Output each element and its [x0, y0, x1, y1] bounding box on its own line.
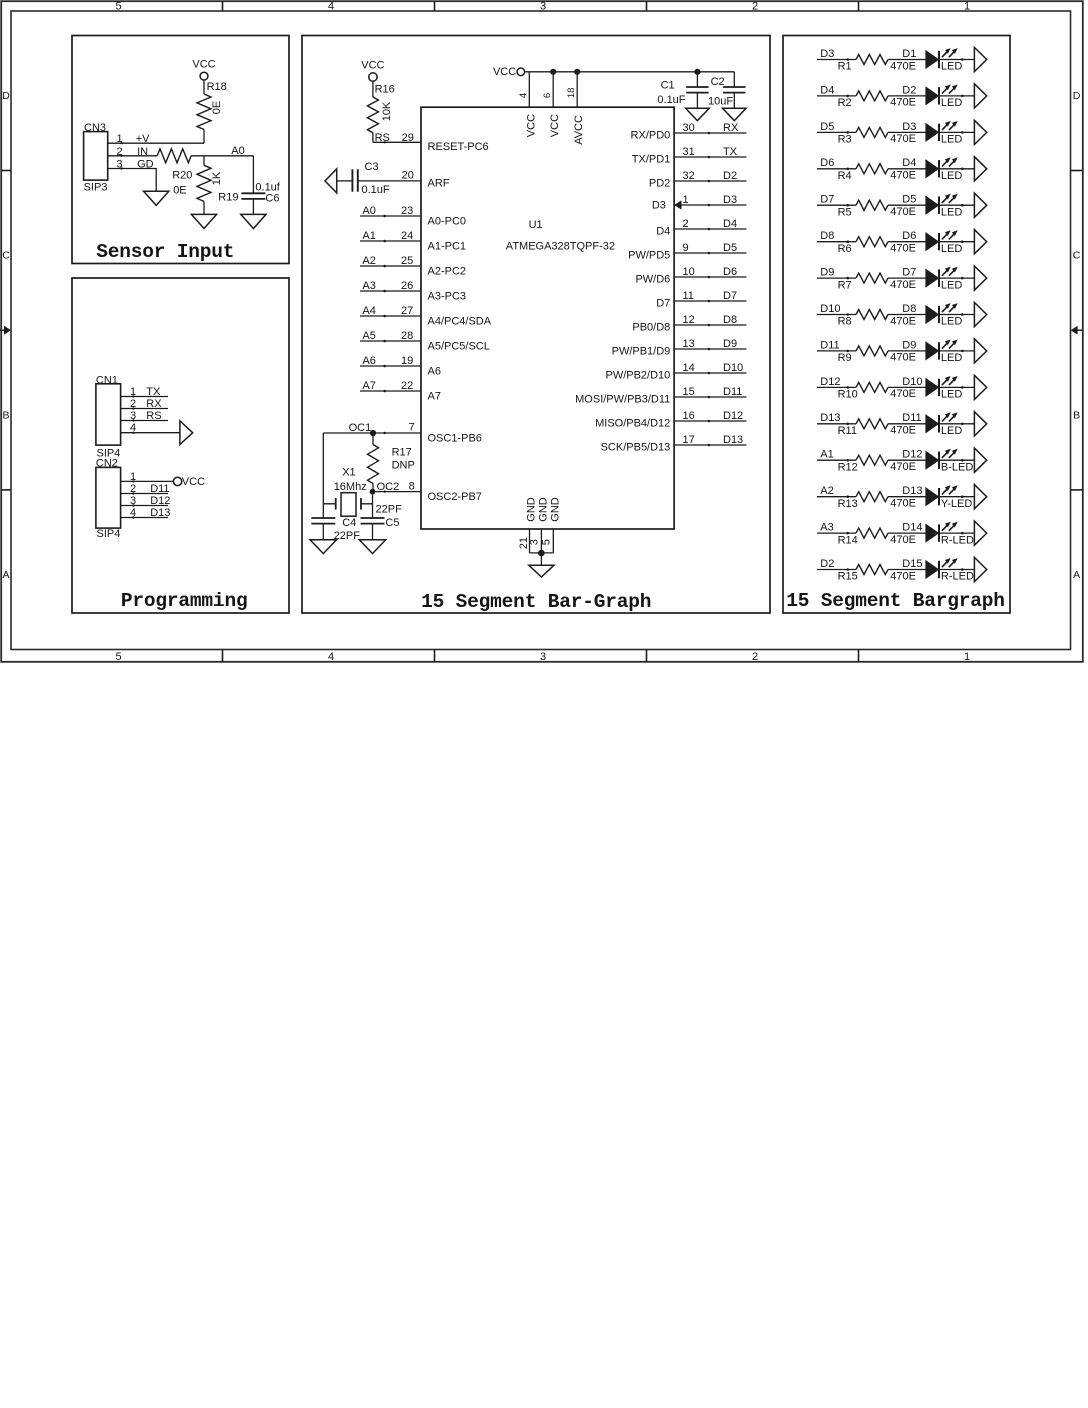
svg-text:22PF: 22PF — [334, 530, 361, 542]
svg-text:D2: D2 — [902, 84, 916, 96]
svg-text:18: 18 — [566, 88, 577, 99]
svg-text:13: 13 — [683, 338, 695, 350]
svg-text:D12: D12 — [723, 410, 743, 422]
svg-text:25: 25 — [401, 255, 413, 267]
svg-text:A: A — [2, 569, 9, 581]
svg-text:R1: R1 — [838, 61, 852, 73]
svg-text:D5: D5 — [820, 121, 834, 133]
svg-text:OC2: OC2 — [377, 481, 400, 493]
svg-text:A5/PC5/SCL: A5/PC5/SCL — [428, 341, 490, 353]
svg-text:10: 10 — [683, 266, 695, 278]
svg-text:AVCC: AVCC — [573, 115, 585, 145]
svg-text:3: 3 — [540, 651, 546, 663]
svg-text:470E: 470E — [890, 388, 916, 400]
svg-text:0E: 0E — [211, 101, 223, 114]
svg-text:A7: A7 — [362, 380, 375, 392]
svg-text:1: 1 — [683, 194, 689, 206]
svg-text:470E: 470E — [890, 534, 916, 546]
svg-text:31: 31 — [683, 146, 695, 158]
svg-text:R7: R7 — [838, 279, 852, 291]
svg-text:15: 15 — [683, 386, 695, 398]
svg-text:C: C — [1073, 250, 1081, 262]
svg-text:D6: D6 — [723, 266, 737, 278]
svg-text:D8: D8 — [723, 314, 737, 326]
svg-text:470E: 470E — [890, 97, 916, 109]
svg-text:R14: R14 — [838, 534, 858, 546]
svg-text:D11: D11 — [820, 339, 839, 351]
svg-text:17: 17 — [683, 434, 695, 446]
svg-text:MISO/PB4/D12: MISO/PB4/D12 — [595, 418, 670, 430]
svg-text:X1: X1 — [342, 467, 355, 479]
svg-text:D10: D10 — [902, 376, 922, 388]
svg-text:LED: LED — [941, 61, 962, 73]
svg-text:D9: D9 — [902, 339, 916, 351]
svg-text:5: 5 — [115, 651, 121, 663]
svg-text:D11: D11 — [723, 386, 742, 398]
svg-text:Programming: Programming — [121, 590, 248, 612]
svg-text:3: 3 — [117, 158, 123, 170]
svg-text:PW/PB1/D9: PW/PB1/D9 — [612, 346, 671, 358]
svg-text:D7: D7 — [723, 290, 737, 302]
svg-text:D11: D11 — [150, 483, 169, 495]
svg-text:R8: R8 — [838, 316, 852, 328]
svg-text:C6: C6 — [265, 192, 279, 204]
svg-text:LED: LED — [941, 279, 962, 291]
svg-text:A: A — [1073, 569, 1080, 581]
svg-text:D8: D8 — [820, 230, 834, 242]
svg-text:R16: R16 — [375, 84, 395, 96]
svg-text:3: 3 — [130, 410, 136, 422]
svg-text:LED: LED — [941, 134, 962, 146]
svg-text:GD: GD — [137, 158, 154, 170]
svg-text:470E: 470E — [890, 243, 916, 255]
svg-text:D10: D10 — [723, 362, 743, 374]
svg-text:470E: 470E — [890, 170, 916, 182]
svg-text:A3: A3 — [820, 522, 833, 534]
svg-text:4: 4 — [328, 651, 334, 663]
svg-text:RESET-PC6: RESET-PC6 — [428, 141, 489, 153]
svg-text:R6: R6 — [838, 243, 852, 255]
svg-text:VCC: VCC — [192, 59, 215, 71]
svg-text:D15: D15 — [902, 558, 922, 570]
svg-text:2: 2 — [117, 146, 123, 158]
svg-text:1: 1 — [130, 386, 136, 398]
svg-text:D4: D4 — [723, 218, 737, 230]
svg-text:B: B — [2, 409, 9, 421]
svg-text:470E: 470E — [890, 570, 916, 582]
svg-text:LED: LED — [941, 389, 962, 401]
svg-text:LED: LED — [941, 170, 962, 182]
svg-text:C4: C4 — [342, 517, 356, 529]
svg-text:R19: R19 — [218, 191, 238, 203]
svg-text:D8: D8 — [902, 303, 916, 315]
svg-text:R2: R2 — [838, 97, 852, 109]
svg-text:C: C — [2, 250, 10, 262]
svg-text:A2: A2 — [820, 485, 833, 497]
svg-text:D11: D11 — [902, 412, 921, 424]
svg-text:16: 16 — [683, 410, 695, 422]
svg-text:D13: D13 — [820, 412, 840, 424]
svg-text:R4: R4 — [838, 170, 852, 182]
svg-text:C5: C5 — [385, 517, 399, 529]
svg-text:470E: 470E — [890, 206, 916, 218]
svg-text:10uF: 10uF — [708, 95, 733, 107]
svg-text:+V: +V — [136, 133, 150, 145]
svg-text:470E: 470E — [890, 60, 916, 72]
svg-text:24: 24 — [401, 230, 413, 242]
svg-text:D1: D1 — [902, 48, 916, 60]
svg-text:LED: LED — [941, 243, 962, 255]
svg-text:RX: RX — [723, 122, 739, 134]
svg-text:D2: D2 — [723, 170, 737, 182]
svg-text:2: 2 — [752, 1, 758, 13]
svg-text:D13: D13 — [723, 434, 743, 446]
svg-text:32: 32 — [683, 170, 695, 182]
svg-text:2: 2 — [752, 651, 758, 663]
svg-text:D12: D12 — [902, 449, 922, 461]
svg-text:5: 5 — [541, 539, 553, 545]
svg-text:LED: LED — [941, 97, 962, 109]
svg-text:1: 1 — [117, 133, 123, 145]
svg-text:470E: 470E — [890, 279, 916, 291]
svg-text:D5: D5 — [723, 242, 737, 254]
svg-text:R17: R17 — [392, 447, 412, 459]
svg-text:PW/PB2/D10: PW/PB2/D10 — [605, 370, 670, 382]
svg-text:PW/PD5: PW/PD5 — [628, 250, 670, 262]
svg-text:D4: D4 — [820, 84, 834, 96]
svg-text:D4: D4 — [656, 226, 670, 238]
svg-text:3: 3 — [528, 539, 540, 545]
svg-text:PB0/D8: PB0/D8 — [632, 322, 670, 334]
svg-text:D12: D12 — [150, 495, 170, 507]
svg-text:A1: A1 — [362, 230, 375, 242]
svg-text:0.1uF: 0.1uF — [657, 94, 685, 106]
svg-text:3: 3 — [540, 1, 546, 13]
svg-text:D10: D10 — [820, 303, 840, 315]
svg-text:D3: D3 — [652, 200, 666, 212]
svg-text:SCK/PB5/D13: SCK/PB5/D13 — [601, 442, 671, 454]
svg-text:OSC2-PB7: OSC2-PB7 — [428, 491, 482, 503]
svg-text:ARF: ARF — [428, 177, 450, 189]
svg-text:GND: GND — [550, 497, 562, 522]
svg-text:U1: U1 — [529, 219, 543, 231]
svg-text:12: 12 — [683, 314, 695, 326]
svg-text:470E: 470E — [890, 315, 916, 327]
svg-text:14: 14 — [683, 362, 695, 374]
svg-text:GND: GND — [526, 497, 538, 522]
svg-text:1: 1 — [964, 1, 970, 13]
svg-text:TX: TX — [146, 386, 161, 398]
svg-text:OC1: OC1 — [349, 422, 372, 434]
svg-text:R-LED: R-LED — [941, 571, 974, 583]
svg-text:0E: 0E — [173, 184, 186, 196]
svg-text:22PF: 22PF — [376, 504, 403, 516]
svg-text:D7: D7 — [656, 298, 670, 310]
svg-text:5: 5 — [115, 1, 121, 13]
svg-text:A1-PC1: A1-PC1 — [428, 241, 467, 253]
svg-text:D13: D13 — [150, 507, 170, 519]
svg-text:R5: R5 — [838, 206, 852, 218]
svg-text:28: 28 — [401, 330, 413, 342]
svg-text:LED: LED — [941, 206, 962, 218]
svg-text:1: 1 — [964, 651, 970, 663]
svg-text:D3: D3 — [820, 48, 834, 60]
svg-text:A4/PC4/SDA: A4/PC4/SDA — [428, 316, 492, 328]
svg-text:D: D — [1073, 90, 1081, 102]
svg-text:R12: R12 — [838, 461, 858, 473]
svg-text:A2-PC2: A2-PC2 — [428, 266, 467, 278]
svg-text:R9: R9 — [838, 352, 852, 364]
svg-text:15 Segment Bargraph: 15 Segment Bargraph — [786, 590, 1005, 612]
svg-text:30: 30 — [683, 122, 695, 134]
svg-text:D3: D3 — [723, 194, 737, 206]
svg-text:A1: A1 — [820, 449, 833, 461]
svg-text:6: 6 — [542, 93, 553, 98]
svg-text:27: 27 — [401, 305, 413, 317]
svg-text:RX/PD0: RX/PD0 — [631, 130, 671, 142]
svg-text:VCC: VCC — [182, 476, 205, 488]
svg-text:4: 4 — [328, 1, 334, 13]
svg-text:20: 20 — [402, 169, 414, 181]
svg-text:D: D — [2, 90, 10, 102]
svg-text:R11: R11 — [838, 425, 857, 437]
svg-text:11: 11 — [683, 290, 694, 302]
svg-text:SIP3: SIP3 — [84, 181, 108, 193]
svg-text:B-LED: B-LED — [941, 461, 973, 473]
svg-text:A2: A2 — [362, 255, 375, 267]
svg-text:7: 7 — [409, 422, 415, 434]
svg-text:4: 4 — [130, 422, 136, 434]
svg-text:D5: D5 — [902, 194, 916, 206]
svg-text:D9: D9 — [820, 267, 834, 279]
svg-text:C3: C3 — [365, 161, 379, 173]
svg-text:LED: LED — [941, 316, 962, 328]
svg-text:R18: R18 — [207, 81, 227, 93]
svg-text:R-LED: R-LED — [941, 534, 974, 546]
svg-text:RS: RS — [146, 410, 161, 422]
svg-text:1K: 1K — [211, 171, 223, 185]
svg-text:15 Segment Bar-Graph: 15 Segment Bar-Graph — [421, 591, 651, 613]
svg-text:VCC: VCC — [493, 66, 516, 78]
svg-text:D9: D9 — [723, 338, 737, 350]
svg-text:10K: 10K — [381, 101, 393, 121]
svg-text:A3: A3 — [362, 280, 375, 292]
svg-text:0.1uF: 0.1uF — [362, 184, 390, 196]
svg-text:A6: A6 — [428, 366, 441, 378]
svg-text:CN1: CN1 — [96, 374, 118, 386]
svg-text:B: B — [1073, 409, 1080, 421]
svg-text:2: 2 — [683, 218, 689, 230]
svg-text:D14: D14 — [902, 522, 922, 534]
svg-text:TX: TX — [723, 146, 738, 158]
svg-text:22: 22 — [401, 380, 413, 392]
svg-text:A0: A0 — [362, 205, 375, 217]
svg-text:3: 3 — [130, 495, 136, 507]
svg-text:R3: R3 — [838, 134, 852, 146]
svg-text:GND: GND — [538, 497, 550, 522]
svg-text:470E: 470E — [890, 133, 916, 145]
svg-text:A0-PC0: A0-PC0 — [428, 216, 467, 228]
svg-text:D12: D12 — [820, 376, 840, 388]
svg-text:2: 2 — [130, 398, 136, 410]
svg-text:R13: R13 — [838, 498, 858, 510]
svg-text:R15: R15 — [838, 571, 858, 583]
svg-text:8: 8 — [409, 480, 415, 492]
svg-text:A6: A6 — [362, 355, 375, 367]
svg-text:29: 29 — [402, 132, 414, 144]
svg-text:2: 2 — [130, 483, 136, 495]
svg-text:470E: 470E — [890, 352, 916, 364]
svg-text:A3-PC3: A3-PC3 — [428, 291, 467, 303]
svg-text:470E: 470E — [890, 461, 916, 473]
svg-text:Sensor Input: Sensor Input — [96, 241, 234, 263]
svg-text:470E: 470E — [890, 425, 916, 437]
svg-text:ATMEGA328TQPF-32: ATMEGA328TQPF-32 — [506, 241, 615, 253]
svg-text:VCC: VCC — [549, 114, 561, 137]
svg-text:R10: R10 — [838, 389, 858, 401]
svg-text:RX: RX — [146, 398, 162, 410]
svg-text:VCC: VCC — [361, 60, 384, 72]
svg-text:OSC1-PB6: OSC1-PB6 — [428, 433, 482, 445]
svg-text:470E: 470E — [890, 498, 916, 510]
svg-text:Y-LED: Y-LED — [941, 498, 972, 510]
svg-text:4: 4 — [130, 507, 136, 519]
svg-text:C2: C2 — [711, 76, 725, 88]
svg-text:D7: D7 — [820, 194, 834, 206]
svg-text:D6: D6 — [902, 230, 916, 242]
svg-text:TX/PD1: TX/PD1 — [632, 154, 671, 166]
svg-text:9: 9 — [683, 242, 689, 254]
svg-text:16Mhz: 16Mhz — [334, 481, 367, 493]
svg-text:D7: D7 — [902, 267, 916, 279]
svg-text:PD2: PD2 — [649, 178, 670, 190]
svg-text:A5: A5 — [362, 330, 375, 342]
svg-text:A7: A7 — [428, 391, 441, 403]
svg-text:1: 1 — [130, 471, 136, 483]
svg-text:MOSI/PW/PB3/D11: MOSI/PW/PB3/D11 — [575, 394, 670, 406]
svg-text:26: 26 — [401, 280, 413, 292]
svg-text:DNP: DNP — [392, 460, 415, 472]
svg-text:A0: A0 — [231, 145, 244, 157]
svg-text:IN: IN — [137, 146, 148, 158]
svg-text:4: 4 — [518, 93, 529, 98]
svg-text:A4: A4 — [362, 305, 375, 317]
svg-text:LED: LED — [941, 425, 962, 437]
svg-text:D3: D3 — [902, 121, 916, 133]
svg-text:PW/D6: PW/D6 — [635, 274, 670, 286]
svg-text:D6: D6 — [820, 157, 834, 169]
svg-text:C1: C1 — [661, 79, 675, 91]
svg-text:23: 23 — [401, 205, 413, 217]
svg-text:SIP4: SIP4 — [97, 528, 121, 540]
svg-text:VCC: VCC — [525, 114, 537, 137]
svg-text:D13: D13 — [902, 485, 922, 497]
svg-text:LED: LED — [941, 352, 962, 364]
svg-text:19: 19 — [401, 355, 413, 367]
svg-text:D4: D4 — [902, 157, 916, 169]
svg-text:D2: D2 — [820, 558, 834, 570]
svg-text:R20: R20 — [172, 169, 192, 181]
